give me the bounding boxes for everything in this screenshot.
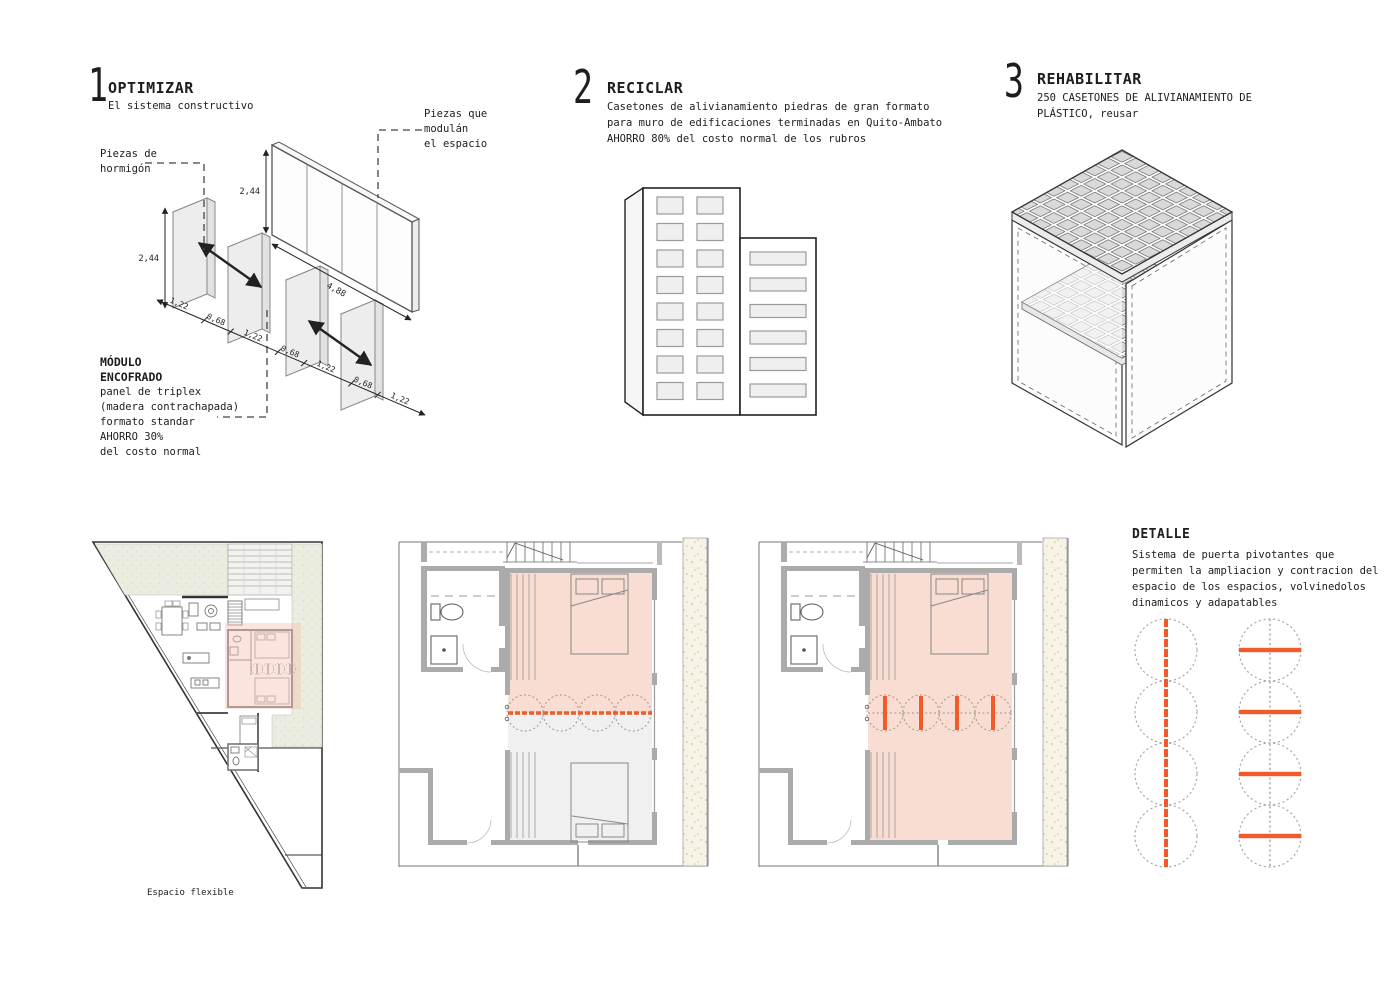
building-side-face [625, 188, 643, 415]
plan-a-gray-zone [508, 713, 652, 840]
dim-wall-height: 2,44 [240, 150, 266, 233]
building-drawing [615, 170, 825, 422]
site-plan-drawing [85, 535, 335, 907]
formwork-panel-2 [228, 233, 270, 343]
section-1-title: OPTIMIZAR [108, 79, 194, 97]
detail-doors-closed [1135, 619, 1197, 867]
flexible-space-highlight [225, 623, 301, 709]
section-3-text: 250 CASETONES DE ALIVIANAMIENTO DE PLÁST… [1037, 90, 1252, 122]
svg-text:2,44: 2,44 [139, 254, 159, 264]
pivot-door-detail-drawing [1128, 612, 1318, 882]
svg-text:2,44: 2,44 [240, 187, 260, 197]
site-plan-label: Espacio flexible [147, 888, 234, 898]
building-tower [643, 188, 740, 415]
section-3-number: 3 [1004, 58, 1024, 104]
floor-plan-closed [395, 530, 715, 875]
formwork-panel-1 [173, 198, 215, 308]
formwork-panel-4 [341, 300, 383, 410]
presentation-board: 1 OPTIMIZAR El sistema constructivo Piez… [0, 0, 1400, 990]
section-3-title: REHABILITAR [1037, 70, 1142, 88]
detalle-title: DETALLE [1132, 527, 1190, 542]
deck-stripes [228, 544, 292, 595]
waffle-slab-structure-drawing [1000, 135, 1250, 475]
detail-doors-open [1239, 619, 1301, 867]
section-1-number: 1 [88, 62, 108, 108]
detalle-text: Sistema de puerta pivotantes que permite… [1132, 547, 1379, 611]
section-1-subtitle: El sistema constructivo [108, 99, 253, 114]
section-2-text: Casetones de alivianamiento piedras de g… [607, 99, 942, 147]
garden-top-left [95, 544, 228, 595]
section-2-title: RECICLAR [607, 79, 683, 97]
dim-panel-height: 2,44 [139, 208, 165, 308]
floor-plan-open [755, 530, 1075, 875]
section-2-number: 2 [573, 64, 593, 110]
plan-a-pink-zone [508, 572, 652, 713]
formwork-panels-drawing: 2,44 2,44 4,88 1,22 0,68 1,22 [85, 120, 480, 472]
